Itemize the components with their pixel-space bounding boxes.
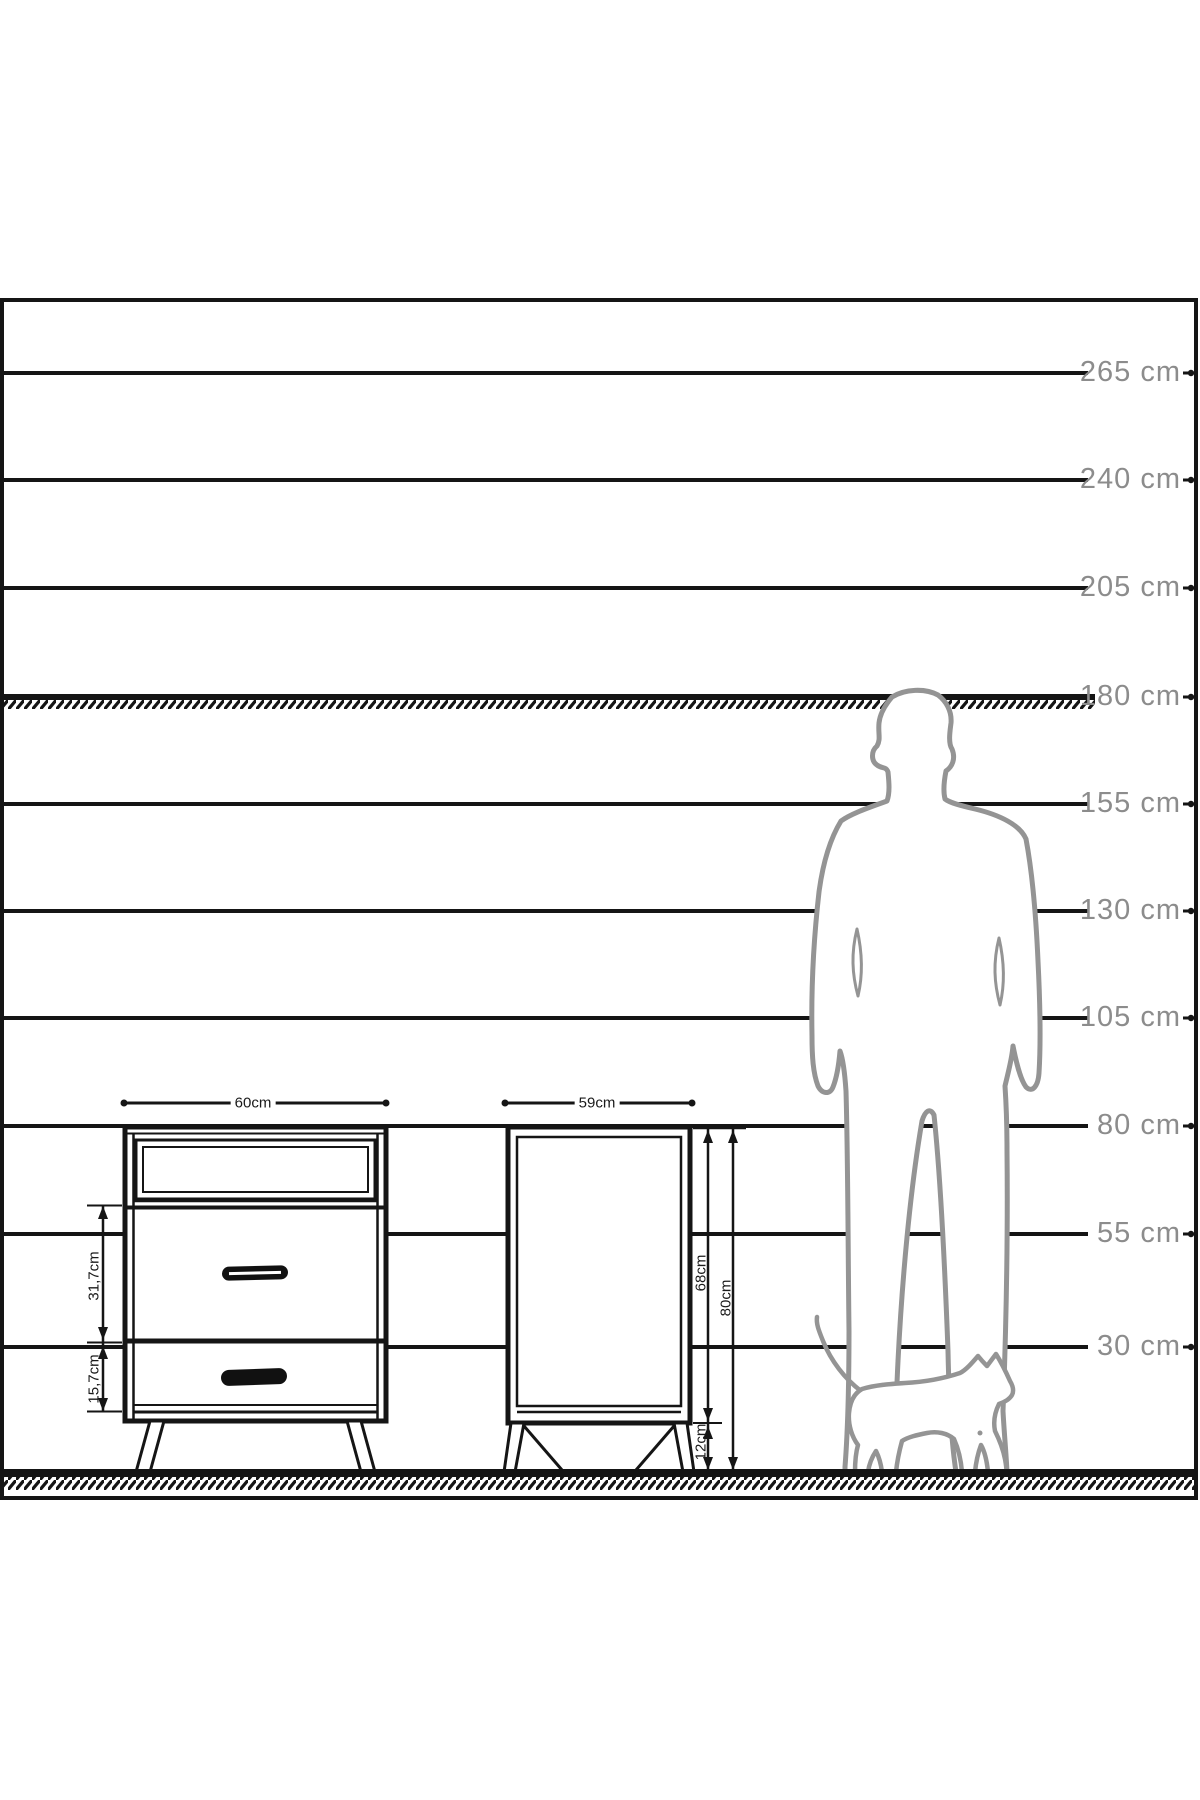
height-label-55: 55 cm (1097, 1219, 1181, 1248)
height-label-80: 80 cm (1097, 1111, 1181, 1140)
height-label-130: 130 cm (1080, 896, 1181, 925)
diagram-canvas (0, 0, 1200, 1800)
front-lower-drawer-height-label: 15,7cm (87, 1354, 102, 1403)
scale-line-right-dot (1188, 1231, 1194, 1237)
scale-line-right-dot (1188, 585, 1194, 591)
cat-shoulder-dot (978, 1431, 983, 1436)
height-label-155: 155 cm (1080, 789, 1181, 818)
scale-line-right-dot (1188, 1123, 1194, 1129)
man-outline (812, 690, 1040, 1472)
side-leg-height-label: 12cm (694, 1424, 709, 1461)
side-body-height-label: 68cm (694, 1255, 709, 1292)
front-right-leg (347, 1421, 375, 1472)
height-label-180: 180 cm (1080, 682, 1181, 711)
side-width-label: 59cm (575, 1096, 620, 1111)
scale-line-right-dot (1188, 370, 1194, 376)
scale-line-right-dot (1188, 694, 1194, 700)
scale-line-right-dot (1188, 1344, 1194, 1350)
height-label-205: 205 cm (1080, 573, 1181, 602)
nightstand-front-view (125, 1127, 386, 1472)
front-width-label: 60cm (231, 1096, 276, 1111)
ground-hatch (2, 1477, 1196, 1490)
nightstand-side-view (504, 1127, 694, 1472)
side-left-leg (504, 1423, 524, 1472)
man-right-cuff-detail (995, 938, 1003, 1005)
height-label-105: 105 cm (1080, 1003, 1181, 1032)
drawer-handle-top (222, 1265, 288, 1281)
man-left-cuff-detail (853, 929, 861, 996)
height-label-30: 30 cm (1097, 1332, 1181, 1361)
furniture-scale-diagram: 60cm 59cm 31,7cm 15,7cm 68cm 12cm 80cm 2… (0, 0, 1200, 1800)
front-upper-drawer-height-label: 31,7cm (87, 1251, 102, 1300)
height-label-265: 265 cm (1080, 358, 1181, 387)
side-right-leg (674, 1423, 694, 1472)
scale-line-right-dot (1188, 908, 1194, 914)
drawer-handle-bottom (221, 1368, 288, 1386)
height-label-240: 240 cm (1080, 465, 1181, 494)
side-total-height-label: 80cm (719, 1280, 734, 1317)
scale-line-right-dot (1188, 1015, 1194, 1021)
man-silhouette (812, 690, 1040, 1472)
scale-line-right-dot (1188, 801, 1194, 807)
front-left-leg (136, 1421, 164, 1472)
scale-line-right-dot (1188, 477, 1194, 483)
